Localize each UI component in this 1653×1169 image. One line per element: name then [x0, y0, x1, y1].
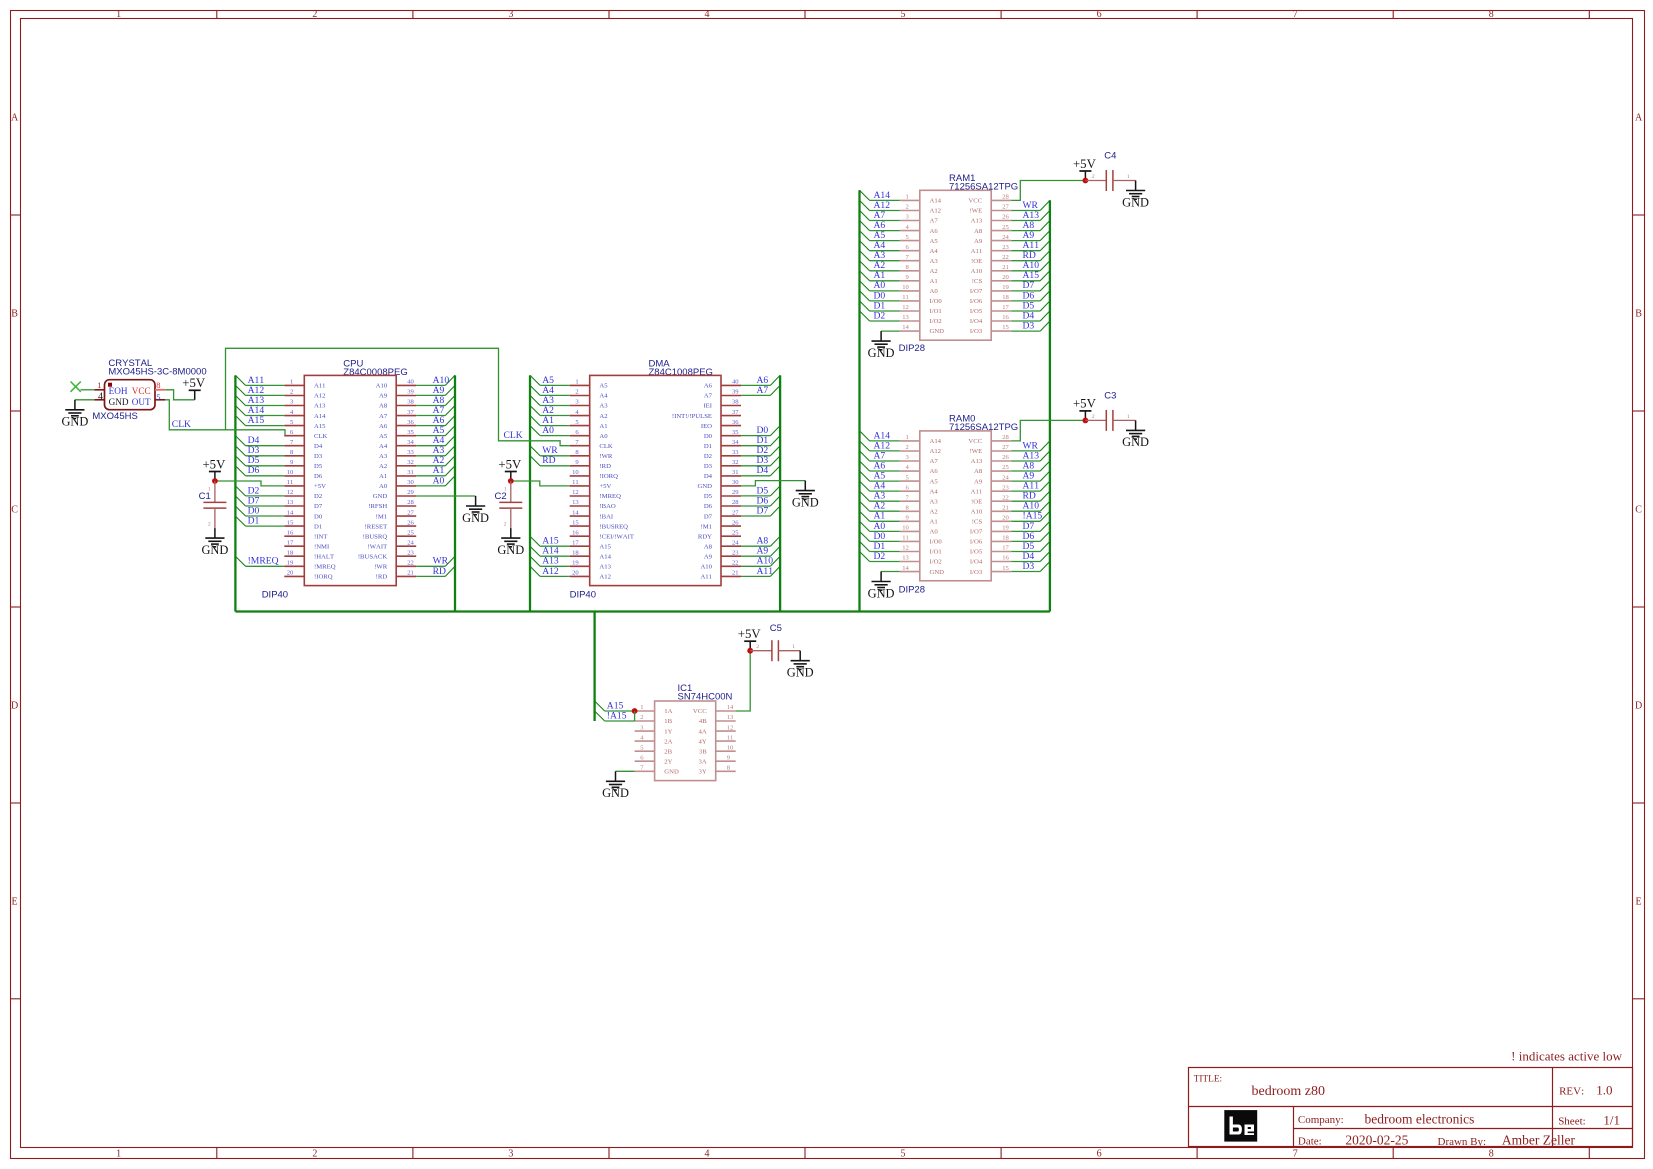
svg-text:40: 40 — [407, 379, 414, 386]
svg-text:!NMI: !NMI — [314, 543, 329, 550]
svg-text:A4: A4 — [930, 488, 939, 495]
svg-text:18: 18 — [1002, 294, 1009, 301]
svg-text:A9: A9 — [974, 238, 983, 245]
svg-text:GND: GND — [1122, 435, 1149, 449]
svg-text:1: 1 — [640, 704, 643, 711]
svg-text:33: 33 — [407, 449, 414, 456]
svg-text:A3: A3 — [930, 498, 939, 505]
svg-text:1Y: 1Y — [664, 728, 672, 735]
svg-text:11: 11 — [902, 294, 909, 301]
svg-text:!BUSACK: !BUSACK — [358, 554, 388, 561]
svg-text:GND: GND — [868, 346, 895, 360]
svg-text:19: 19 — [1002, 525, 1009, 532]
svg-text:12: 12 — [902, 545, 909, 552]
svg-text:A12: A12 — [542, 566, 559, 577]
svg-text:38: 38 — [407, 399, 414, 406]
svg-text:A1: A1 — [599, 423, 607, 430]
svg-text:26: 26 — [407, 519, 414, 526]
svg-text:D7: D7 — [704, 513, 713, 520]
svg-text:15: 15 — [287, 519, 294, 526]
svg-text:2: 2 — [504, 522, 507, 528]
svg-text:4: 4 — [705, 1148, 710, 1159]
svg-text:22: 22 — [1002, 254, 1009, 261]
svg-text:35: 35 — [407, 429, 414, 436]
svg-text:A2: A2 — [599, 413, 607, 420]
svg-text:26: 26 — [1002, 214, 1009, 221]
svg-text:20: 20 — [572, 570, 579, 577]
svg-text:C2: C2 — [495, 491, 507, 502]
svg-text:I/O1: I/O1 — [930, 308, 942, 315]
svg-text:2: 2 — [575, 389, 578, 396]
svg-text:A11: A11 — [971, 248, 983, 255]
svg-text:A13: A13 — [971, 218, 983, 225]
svg-text:12: 12 — [572, 489, 579, 496]
svg-text:RD: RD — [433, 566, 446, 577]
svg-text:1B: 1B — [664, 718, 672, 725]
svg-text:A11: A11 — [314, 383, 326, 390]
svg-text:4Y: 4Y — [699, 738, 707, 745]
svg-text:!WE: !WE — [970, 448, 983, 455]
svg-text:A10: A10 — [971, 509, 983, 516]
svg-text:I/O0: I/O0 — [930, 539, 943, 546]
svg-text:14: 14 — [727, 704, 734, 711]
svg-text:25: 25 — [732, 529, 739, 536]
svg-text:A13: A13 — [314, 403, 326, 410]
svg-text:A7: A7 — [704, 393, 713, 400]
svg-text:!WAIT: !WAIT — [368, 543, 388, 550]
svg-text:23: 23 — [407, 550, 414, 557]
svg-text:10: 10 — [727, 744, 734, 751]
svg-text:B: B — [1635, 309, 1642, 320]
svg-text:I/O3: I/O3 — [970, 569, 983, 576]
svg-text:VCC: VCC — [968, 198, 982, 205]
svg-text:GND: GND — [497, 543, 524, 557]
svg-text:2: 2 — [312, 1148, 317, 1159]
svg-text:19: 19 — [1002, 284, 1009, 291]
svg-text:!RFSH: !RFSH — [368, 503, 387, 510]
svg-text:2: 2 — [208, 522, 211, 528]
svg-text:I/O0: I/O0 — [930, 298, 943, 305]
svg-text:CLK: CLK — [599, 443, 613, 450]
svg-text:!RESET: !RESET — [365, 523, 388, 530]
svg-text:23: 23 — [1002, 244, 1009, 251]
svg-text:RDY: RDY — [698, 533, 712, 540]
svg-text:19: 19 — [572, 560, 579, 567]
svg-text:!IORQ: !IORQ — [599, 473, 618, 480]
svg-text:1: 1 — [1127, 174, 1130, 180]
svg-text:D: D — [1635, 701, 1642, 712]
svg-text:37: 37 — [732, 409, 739, 416]
svg-text:D2: D2 — [704, 453, 712, 460]
svg-text:A7: A7 — [757, 385, 769, 396]
svg-text:!A15: !A15 — [607, 710, 627, 721]
svg-text:13: 13 — [727, 714, 734, 721]
svg-text:25: 25 — [1002, 464, 1009, 471]
svg-text:28: 28 — [1002, 194, 1009, 201]
svg-text:!CS: !CS — [972, 519, 983, 526]
svg-text:2: 2 — [290, 389, 293, 396]
svg-text:D5: D5 — [314, 463, 323, 470]
svg-text:A2: A2 — [379, 463, 387, 470]
svg-text:VCC: VCC — [693, 708, 707, 715]
svg-text:8: 8 — [1489, 1148, 1494, 1159]
svg-text:!INT!/!PULSE: !INT!/!PULSE — [672, 413, 712, 420]
svg-text:A10: A10 — [376, 383, 388, 390]
svg-text:C4: C4 — [1104, 151, 1116, 162]
svg-text:+5V: +5V — [599, 483, 611, 490]
svg-text:I/O6: I/O6 — [970, 539, 983, 546]
svg-text:28: 28 — [1002, 434, 1009, 441]
svg-text:Amber Zeller: Amber Zeller — [1502, 1132, 1576, 1147]
svg-text:A2: A2 — [930, 268, 938, 275]
svg-text:1: 1 — [1127, 414, 1130, 420]
svg-text:D7: D7 — [314, 503, 323, 510]
svg-text:I/O4: I/O4 — [970, 559, 983, 566]
svg-text:DIP40: DIP40 — [262, 590, 288, 601]
svg-text:A3: A3 — [599, 403, 608, 410]
svg-text:RD: RD — [542, 455, 555, 466]
svg-text:GND: GND — [930, 569, 945, 576]
svg-text:C: C — [11, 505, 18, 516]
svg-text:A12: A12 — [599, 574, 611, 581]
svg-text:!CEI/!WAIT: !CEI/!WAIT — [599, 533, 634, 540]
svg-text:2: 2 — [312, 9, 317, 20]
svg-text:14: 14 — [902, 324, 909, 331]
svg-text:35: 35 — [732, 429, 739, 436]
svg-text:28: 28 — [732, 499, 739, 506]
svg-text:40: 40 — [732, 379, 739, 386]
svg-text:1: 1 — [116, 1148, 121, 1159]
svg-text:5: 5 — [156, 392, 160, 402]
svg-text:1: 1 — [290, 379, 293, 386]
svg-text:8: 8 — [1489, 9, 1494, 20]
svg-text:29: 29 — [407, 489, 414, 496]
svg-text:10: 10 — [572, 469, 579, 476]
svg-text:7: 7 — [1293, 9, 1298, 20]
svg-text:2A: 2A — [664, 738, 672, 745]
svg-text:24: 24 — [1002, 234, 1009, 241]
svg-text:A0: A0 — [930, 288, 939, 295]
svg-text:30: 30 — [407, 479, 414, 486]
svg-text:A4: A4 — [379, 443, 388, 450]
svg-text:!CS: !CS — [972, 278, 983, 285]
svg-text:+5V: +5V — [1073, 397, 1097, 411]
svg-text:18: 18 — [1002, 535, 1009, 542]
svg-text:2Y: 2Y — [664, 759, 672, 766]
svg-text:A14: A14 — [314, 413, 326, 420]
svg-text:D1: D1 — [248, 516, 260, 527]
svg-text:2: 2 — [1092, 414, 1095, 420]
svg-text:A13: A13 — [971, 458, 983, 465]
svg-text:A12: A12 — [930, 448, 942, 455]
svg-text:2: 2 — [1092, 174, 1095, 180]
svg-text:25: 25 — [407, 529, 414, 536]
svg-text:18: 18 — [287, 550, 294, 557]
svg-text:3: 3 — [508, 1148, 513, 1159]
svg-text:A12: A12 — [930, 208, 942, 215]
svg-text:28: 28 — [407, 499, 414, 506]
svg-text:+5V: +5V — [202, 457, 226, 471]
svg-text:17: 17 — [572, 539, 579, 546]
svg-text:+5V: +5V — [182, 376, 206, 390]
svg-text:bedroom z80: bedroom z80 — [1252, 1084, 1325, 1099]
svg-text:A15: A15 — [248, 415, 265, 426]
svg-text:1A: 1A — [664, 708, 672, 715]
svg-text:21: 21 — [407, 570, 414, 577]
svg-text:10: 10 — [902, 525, 909, 532]
svg-text:2: 2 — [640, 714, 643, 721]
svg-text:MXO45HS: MXO45HS — [92, 411, 137, 422]
svg-text:!BUSREQ: !BUSREQ — [599, 523, 628, 530]
svg-text:bedroom electronics: bedroom electronics — [1365, 1111, 1475, 1126]
svg-text:! indicates active low: ! indicates active low — [1511, 1049, 1622, 1064]
svg-text:CLK: CLK — [504, 430, 523, 441]
svg-text:22: 22 — [1002, 494, 1009, 501]
svg-text:5: 5 — [901, 1148, 906, 1159]
svg-text:+5V: +5V — [498, 457, 522, 471]
svg-text:IEO: IEO — [701, 423, 712, 430]
svg-text:C3: C3 — [1104, 390, 1116, 401]
svg-text:26: 26 — [1002, 454, 1009, 461]
svg-text:13: 13 — [572, 499, 579, 506]
svg-text:VCC: VCC — [968, 438, 982, 445]
svg-text:4: 4 — [705, 9, 710, 20]
svg-text:!M1: !M1 — [376, 513, 388, 520]
svg-text:!BAO: !BAO — [599, 503, 616, 510]
svg-text:17: 17 — [1002, 304, 1009, 311]
svg-text:I/O7: I/O7 — [970, 529, 983, 536]
svg-text:!WE: !WE — [970, 208, 983, 215]
svg-text:2B: 2B — [664, 748, 672, 755]
svg-text:D4: D4 — [314, 443, 323, 450]
svg-text:A9: A9 — [379, 393, 388, 400]
svg-text:A5: A5 — [930, 478, 939, 485]
svg-text:D3: D3 — [1023, 561, 1035, 572]
svg-text:!OE: !OE — [971, 258, 982, 265]
svg-text:A8: A8 — [974, 468, 983, 475]
svg-text:11: 11 — [727, 734, 734, 741]
svg-text:32: 32 — [407, 459, 414, 466]
svg-text:A2: A2 — [930, 509, 938, 516]
svg-text:D1: D1 — [704, 443, 712, 450]
svg-text:17: 17 — [287, 539, 294, 546]
svg-text:A5: A5 — [599, 383, 608, 390]
svg-text:1: 1 — [906, 434, 909, 441]
svg-text:4A: 4A — [699, 728, 707, 735]
svg-text:I/O2: I/O2 — [930, 318, 942, 325]
svg-text:GND: GND — [930, 328, 945, 335]
svg-text:A0: A0 — [542, 425, 554, 436]
svg-text:6: 6 — [1097, 1148, 1102, 1159]
svg-text:DIP40: DIP40 — [570, 590, 596, 601]
svg-text:20: 20 — [1002, 515, 1009, 522]
svg-text:A14: A14 — [930, 198, 942, 205]
svg-text:34: 34 — [732, 439, 739, 446]
svg-text:27: 27 — [1002, 444, 1009, 451]
svg-text:5: 5 — [901, 9, 906, 20]
svg-text:GND: GND — [787, 666, 814, 680]
svg-text:23: 23 — [732, 550, 739, 557]
svg-text:A0: A0 — [599, 433, 608, 440]
svg-text:15: 15 — [1002, 324, 1009, 331]
svg-text:38: 38 — [732, 399, 739, 406]
svg-text:1: 1 — [792, 644, 795, 650]
svg-text:A11: A11 — [757, 566, 774, 577]
svg-text:IEI: IEI — [703, 403, 712, 410]
svg-text:A: A — [11, 112, 19, 123]
svg-text:12: 12 — [287, 489, 294, 496]
svg-text:20: 20 — [1002, 274, 1009, 281]
svg-text:C1: C1 — [199, 491, 211, 502]
svg-text:E: E — [1636, 896, 1642, 907]
svg-text:OUT: OUT — [132, 397, 151, 407]
svg-text:1: 1 — [116, 9, 121, 20]
svg-text:!INT: !INT — [314, 533, 327, 540]
svg-text:!WR: !WR — [374, 564, 388, 571]
svg-text:C5: C5 — [770, 623, 782, 634]
svg-text:36: 36 — [407, 419, 414, 426]
svg-text:!WR: !WR — [599, 453, 613, 460]
svg-text:39: 39 — [407, 389, 414, 396]
svg-text:3B: 3B — [699, 748, 707, 755]
svg-text:13: 13 — [902, 555, 909, 562]
svg-text:D6: D6 — [704, 503, 713, 510]
svg-text:D3: D3 — [314, 453, 323, 460]
svg-text:GND: GND — [698, 483, 713, 490]
svg-text:!OE: !OE — [971, 498, 982, 505]
svg-text:D4: D4 — [704, 473, 713, 480]
svg-text:27: 27 — [1002, 204, 1009, 211]
svg-text:A14: A14 — [930, 438, 942, 445]
svg-text:I/O3: I/O3 — [970, 328, 983, 335]
svg-text:A12: A12 — [314, 393, 326, 400]
svg-text:24: 24 — [732, 539, 739, 546]
svg-text:14: 14 — [287, 509, 294, 516]
svg-text:I/O2: I/O2 — [930, 559, 942, 566]
svg-text:D2: D2 — [314, 493, 322, 500]
svg-text:GND: GND — [602, 786, 629, 800]
svg-text:GND: GND — [462, 511, 489, 525]
svg-text:D4: D4 — [757, 465, 769, 476]
svg-text:A7: A7 — [930, 458, 939, 465]
svg-text:GND: GND — [201, 543, 228, 557]
svg-text:D2: D2 — [874, 310, 886, 321]
svg-text:GND: GND — [109, 397, 129, 407]
svg-text:GND: GND — [792, 495, 819, 509]
svg-text:2: 2 — [756, 644, 759, 650]
svg-text:A3: A3 — [930, 258, 939, 265]
svg-text:!IORQ: !IORQ — [314, 574, 333, 581]
svg-text:16: 16 — [572, 529, 579, 536]
svg-text:GND: GND — [868, 586, 895, 600]
svg-text:I/O5: I/O5 — [970, 308, 983, 315]
svg-text:16: 16 — [287, 529, 294, 536]
svg-text:D0: D0 — [314, 513, 323, 520]
svg-text:!RD: !RD — [376, 574, 388, 581]
svg-text:22: 22 — [407, 560, 414, 567]
svg-text:REV:: REV: — [1559, 1085, 1584, 1097]
svg-text:14: 14 — [902, 565, 909, 572]
svg-text:20: 20 — [287, 570, 294, 577]
svg-text:32: 32 — [732, 459, 739, 466]
svg-text:A9: A9 — [974, 478, 983, 485]
svg-text:Drawn By:: Drawn By: — [1438, 1136, 1487, 1148]
svg-text:21: 21 — [732, 570, 739, 577]
svg-text:I/O7: I/O7 — [970, 288, 983, 295]
svg-text:4: 4 — [98, 392, 103, 403]
svg-text:DIP28: DIP28 — [899, 585, 925, 596]
svg-text:11: 11 — [287, 479, 294, 486]
svg-text:27: 27 — [732, 509, 739, 516]
svg-text:A5: A5 — [930, 238, 939, 245]
svg-text:25: 25 — [1002, 224, 1009, 231]
svg-text:!BUSRQ: !BUSRQ — [363, 533, 388, 540]
svg-text:29: 29 — [732, 489, 739, 496]
svg-text:1: 1 — [97, 380, 101, 390]
svg-text:2020-02-25: 2020-02-25 — [1345, 1132, 1408, 1147]
svg-text:24: 24 — [1002, 474, 1009, 481]
svg-text:15: 15 — [572, 519, 579, 526]
svg-text:!MREQ: !MREQ — [314, 564, 336, 571]
svg-text:A1: A1 — [930, 278, 938, 285]
svg-text:Sheet:: Sheet: — [1558, 1115, 1586, 1127]
svg-text:A0: A0 — [433, 475, 445, 486]
svg-text:A0: A0 — [930, 529, 939, 536]
svg-text:14: 14 — [572, 509, 579, 516]
svg-text:CLK: CLK — [314, 433, 328, 440]
svg-text:D2: D2 — [874, 551, 886, 562]
svg-text:+5V: +5V — [314, 483, 326, 490]
svg-text:A1: A1 — [930, 519, 938, 526]
svg-text:7: 7 — [1293, 1148, 1298, 1159]
svg-text:D: D — [11, 701, 18, 712]
svg-text:22: 22 — [732, 560, 739, 567]
svg-text:A: A — [1635, 112, 1643, 123]
svg-text:A11: A11 — [700, 574, 712, 581]
svg-text:27: 27 — [407, 509, 414, 516]
svg-text:16: 16 — [1002, 314, 1009, 321]
svg-text:39: 39 — [732, 389, 739, 396]
svg-text:D1: D1 — [314, 523, 322, 530]
svg-text:D6: D6 — [248, 465, 260, 476]
svg-text:D3: D3 — [1023, 320, 1035, 331]
svg-text:3Y: 3Y — [699, 769, 707, 776]
svg-text:15: 15 — [1002, 565, 1009, 572]
svg-text:3: 3 — [508, 9, 513, 20]
svg-text:18: 18 — [572, 550, 579, 557]
svg-text:A4: A4 — [599, 393, 608, 400]
svg-text:2: 2 — [906, 444, 909, 451]
svg-text:VCC: VCC — [132, 386, 151, 396]
svg-text:37: 37 — [407, 409, 414, 416]
svg-text:A3: A3 — [379, 453, 388, 460]
svg-text:1: 1 — [906, 194, 909, 201]
svg-text:3A: 3A — [699, 759, 707, 766]
svg-text:A6: A6 — [379, 423, 388, 430]
svg-text:Company:: Company: — [1298, 1114, 1344, 1126]
svg-text:23: 23 — [1002, 484, 1009, 491]
svg-text:31: 31 — [732, 469, 739, 476]
svg-text:A8: A8 — [704, 543, 713, 550]
svg-text:21: 21 — [1002, 264, 1009, 271]
svg-text:A4: A4 — [930, 248, 939, 255]
svg-text:2: 2 — [906, 204, 909, 211]
svg-text:A11: A11 — [971, 488, 983, 495]
svg-text:A6: A6 — [704, 383, 713, 390]
svg-text:26: 26 — [732, 519, 739, 526]
svg-text:19: 19 — [287, 560, 294, 567]
svg-text:DIP28: DIP28 — [899, 343, 925, 354]
